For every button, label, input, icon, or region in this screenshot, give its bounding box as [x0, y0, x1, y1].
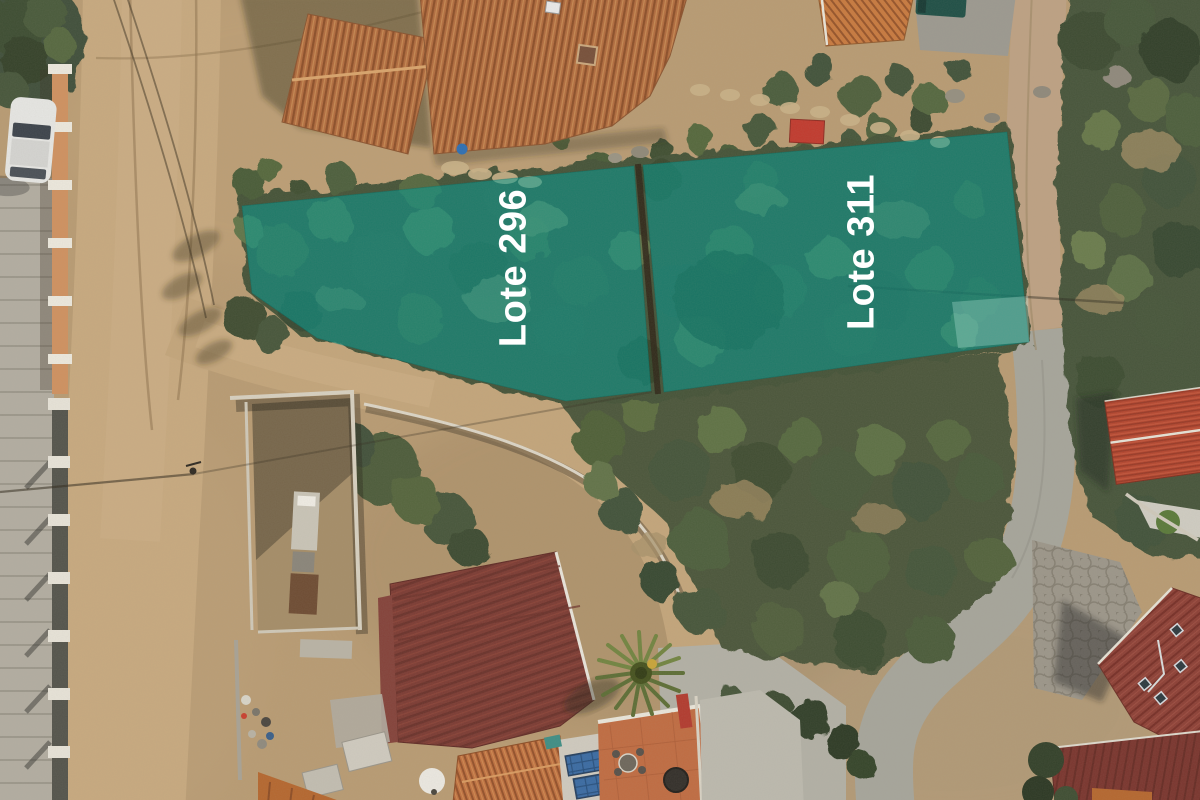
- aerial-photo-svg: [0, 0, 1200, 800]
- lot-label-296: Lote 296: [493, 189, 536, 347]
- photo-grain: [0, 0, 1200, 800]
- lot-label-311: Lote 311: [841, 174, 884, 330]
- aerial-photo: Lote 296 Lote 311: [0, 0, 1200, 800]
